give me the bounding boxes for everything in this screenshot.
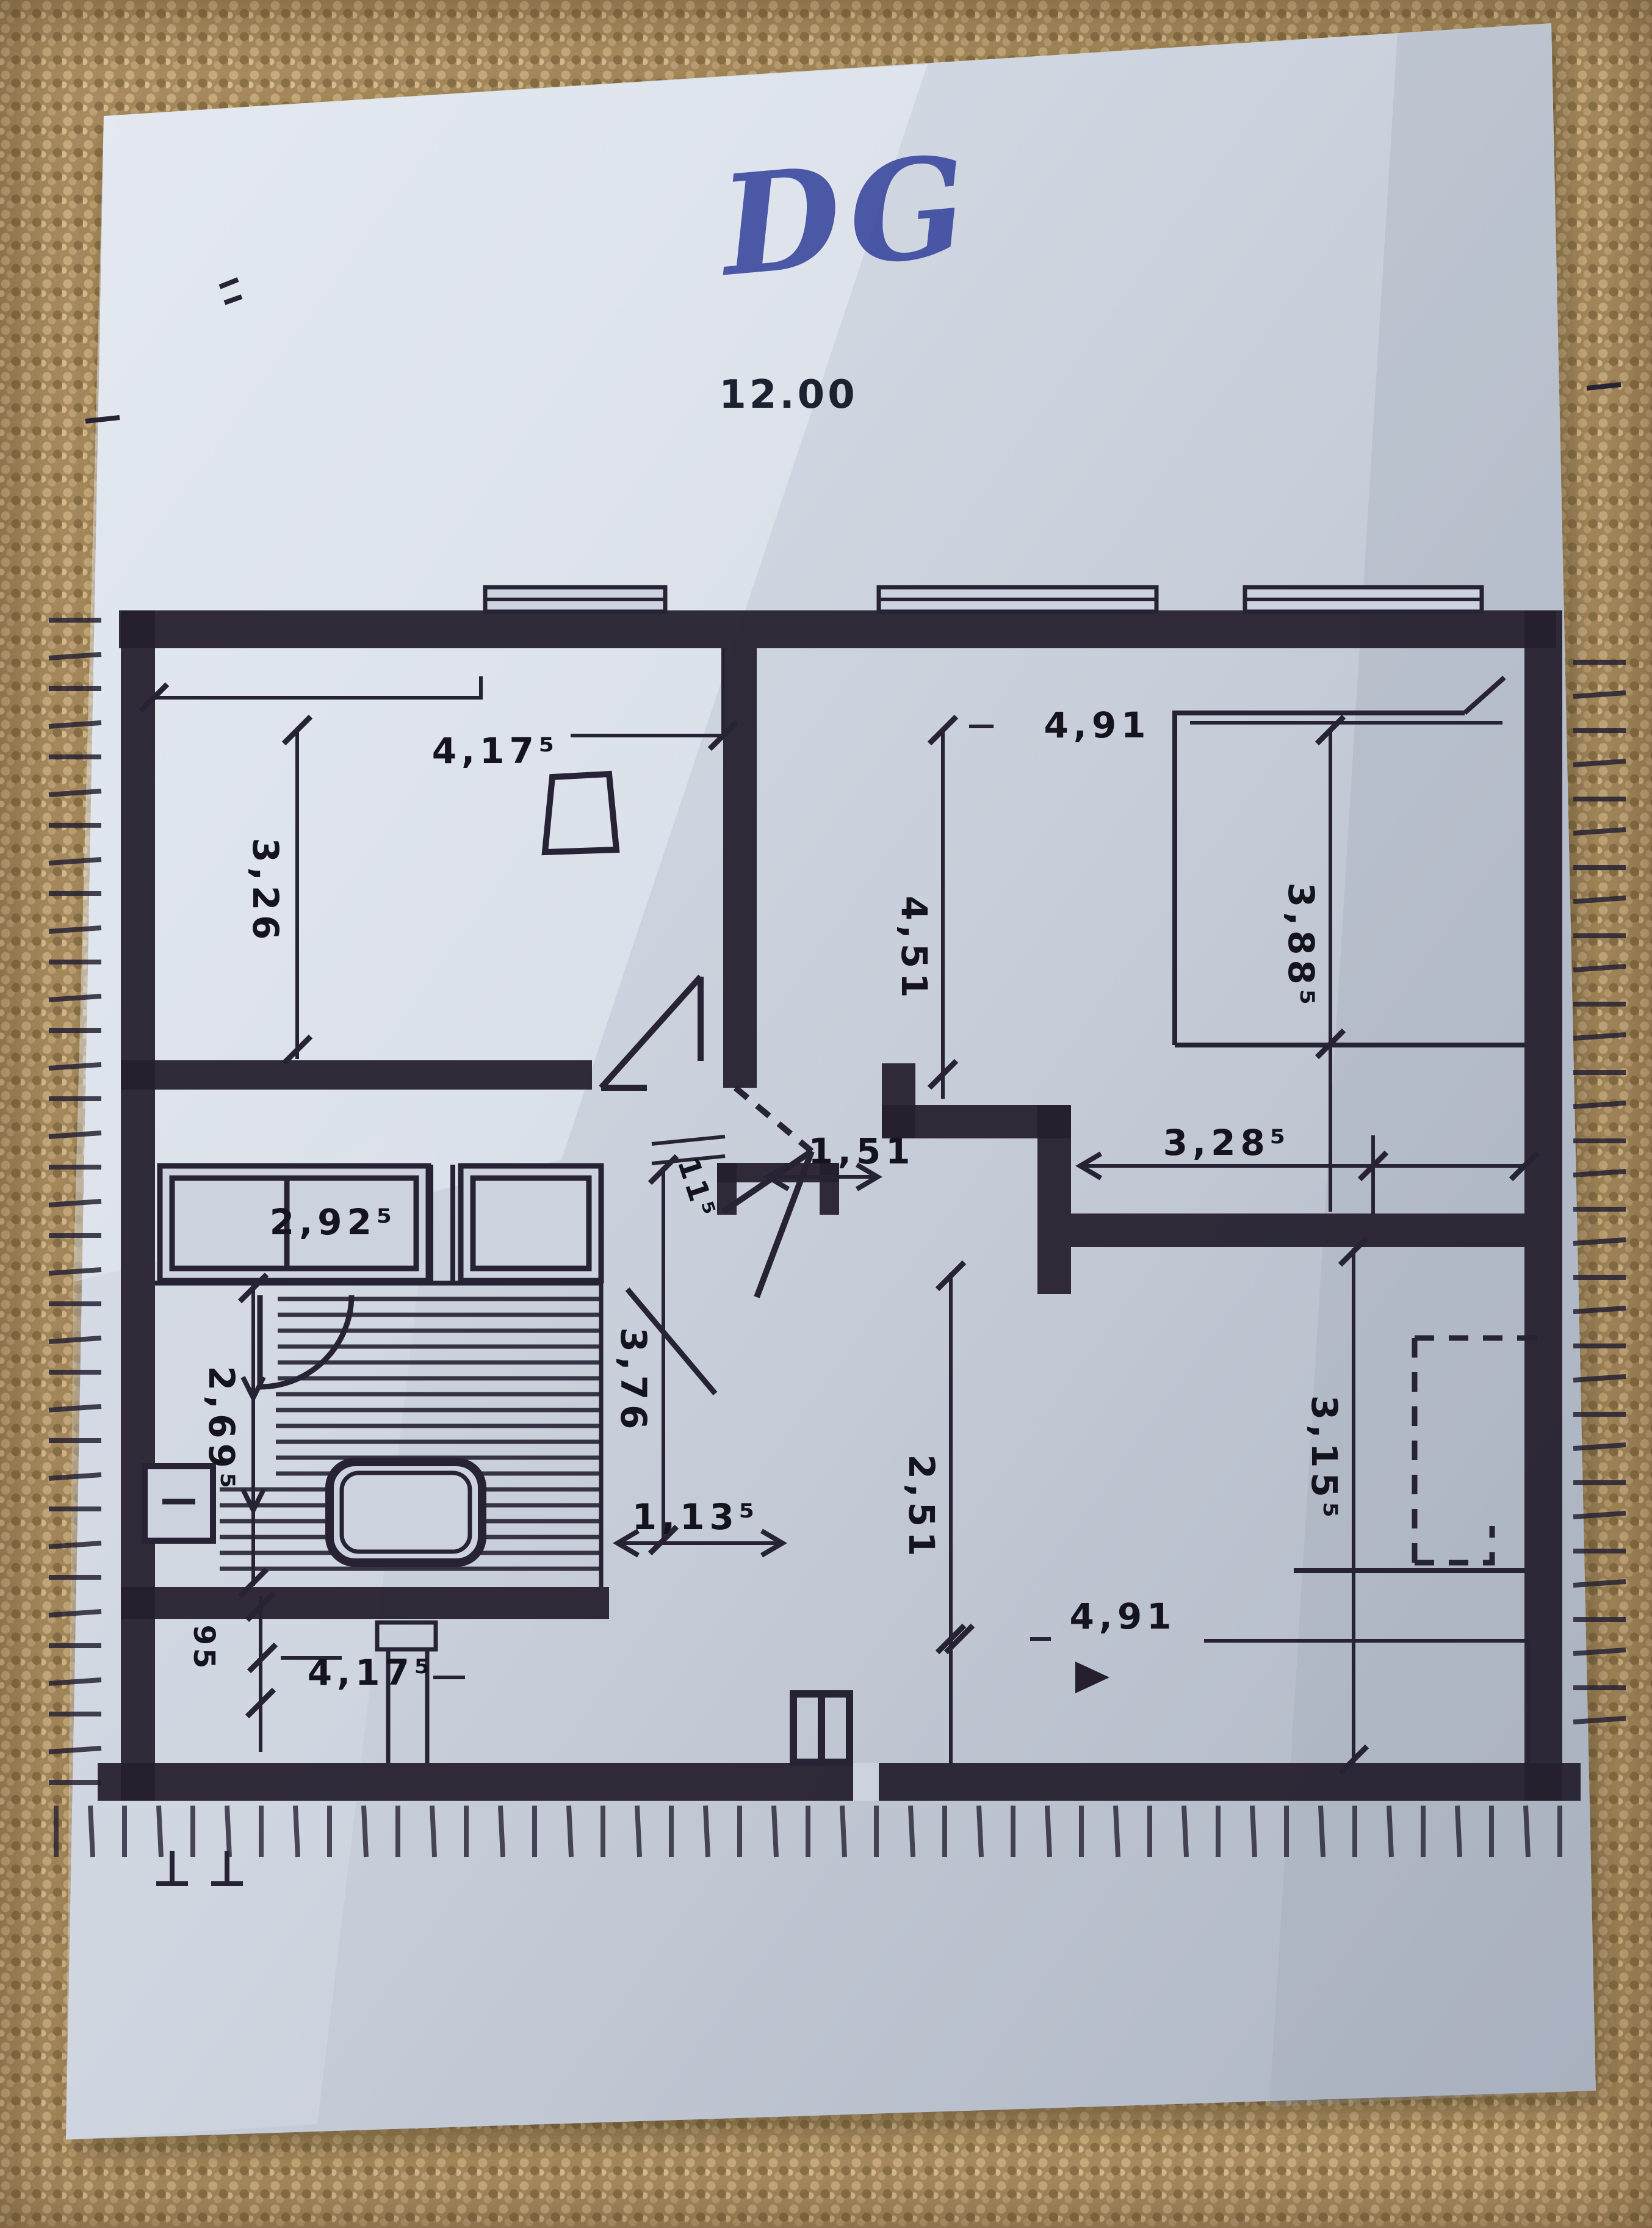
dim-corridor-height: 3,76 xyxy=(613,1327,654,1434)
wall-hall-vertical xyxy=(1037,1105,1071,1294)
wall-room-left-bottom xyxy=(121,1060,592,1090)
dim-left-room-height: 3,26 xyxy=(245,837,286,944)
hatch-mark xyxy=(1047,1806,1050,1857)
hatch-mark xyxy=(911,1806,913,1857)
hatch-mark xyxy=(1321,1806,1323,1857)
photo-of-floor-plan: { "photo": { "handwritten_floor_label": … xyxy=(0,0,1652,2228)
hatch-mark xyxy=(1457,1806,1460,1857)
hatch-mark xyxy=(1573,1035,1626,1038)
dim-center-height: 4,51 xyxy=(893,895,935,1002)
wall-right xyxy=(1524,610,1562,1801)
bathtub xyxy=(330,1462,482,1563)
hatch-mark xyxy=(705,1806,708,1857)
wall-right-rooms xyxy=(1071,1213,1524,1247)
hatch-mark xyxy=(90,1806,93,1857)
wall-left xyxy=(121,610,155,1801)
wall-center-vertical xyxy=(723,648,757,1088)
hatch-mark xyxy=(1573,1376,1626,1380)
handwritten-floor-label: DG xyxy=(712,125,982,308)
hatch-mark xyxy=(295,1806,298,1857)
hatch-mark xyxy=(1573,1103,1626,1107)
hatch-mark xyxy=(500,1806,503,1857)
wall-bottom xyxy=(98,1763,1581,1801)
plan-total-width-label: 12.00 xyxy=(719,372,857,418)
hatch-mark xyxy=(774,1806,776,1857)
dim-bottom-door-width: 1,13⁵ xyxy=(632,1496,760,1538)
window-3 xyxy=(1245,587,1482,612)
window-1 xyxy=(485,587,665,612)
dim-bottom-strip-width: 95 xyxy=(187,1625,221,1672)
dim-bath-height: 2,69⁵ xyxy=(201,1366,242,1494)
hatch-mark xyxy=(1573,1240,1626,1243)
hatch-mark xyxy=(1184,1806,1186,1857)
closet-right xyxy=(461,1166,601,1281)
hatch-mark xyxy=(842,1806,845,1857)
dim-top-left-width: 4,17⁵ xyxy=(432,730,560,772)
hatch-mark xyxy=(1573,830,1626,833)
hatch-mark xyxy=(1526,1806,1528,1857)
dim-right-room-height: 3,88⁵ xyxy=(1280,883,1322,1010)
hatch-mark xyxy=(1573,1308,1626,1312)
hatch-mark xyxy=(637,1806,640,1857)
handwritten-floor-label-text: DG xyxy=(712,125,982,308)
hatch-mark xyxy=(432,1806,435,1857)
hatch-mark xyxy=(1389,1806,1391,1857)
dim-bottom-right-height: 3,15⁵ xyxy=(1304,1395,1345,1523)
floor-plan-photo: DG 12.00 xyxy=(0,0,1652,2228)
dim-bottom-right-width: 4,91 xyxy=(1069,1596,1176,1637)
hatch-mark xyxy=(227,1806,229,1857)
dim-bottom-center-height: 2,51 xyxy=(901,1454,942,1561)
hatch-mark xyxy=(1573,1171,1626,1175)
dim-closet-width: 2,92⁵ xyxy=(270,1201,397,1243)
hatch-mark xyxy=(1573,898,1626,902)
wall-bottom-gap xyxy=(853,1763,879,1801)
hatch-mark xyxy=(1573,966,1626,970)
hatch-mark xyxy=(1116,1806,1118,1857)
hatch-mark xyxy=(1252,1806,1255,1857)
hatch-mark xyxy=(1573,761,1626,765)
windows xyxy=(485,587,1482,612)
wall-top xyxy=(119,610,1556,648)
hatch-mark xyxy=(979,1806,981,1857)
hatch-mark xyxy=(569,1806,571,1857)
dim-top-right-width: 4,91 xyxy=(1044,704,1150,746)
dim-right-hall-width: 3,28⁵ xyxy=(1163,1122,1291,1163)
dim-stair-opening-width: 1,51 xyxy=(808,1130,915,1172)
dim-bottom-left-width: 4,17⁵ xyxy=(308,1652,435,1693)
hatch-mark xyxy=(159,1806,161,1857)
wall-bath-bottom xyxy=(121,1587,609,1619)
hatch-mark xyxy=(364,1806,366,1857)
hatch-mark xyxy=(1573,693,1626,696)
window-2 xyxy=(879,587,1156,612)
